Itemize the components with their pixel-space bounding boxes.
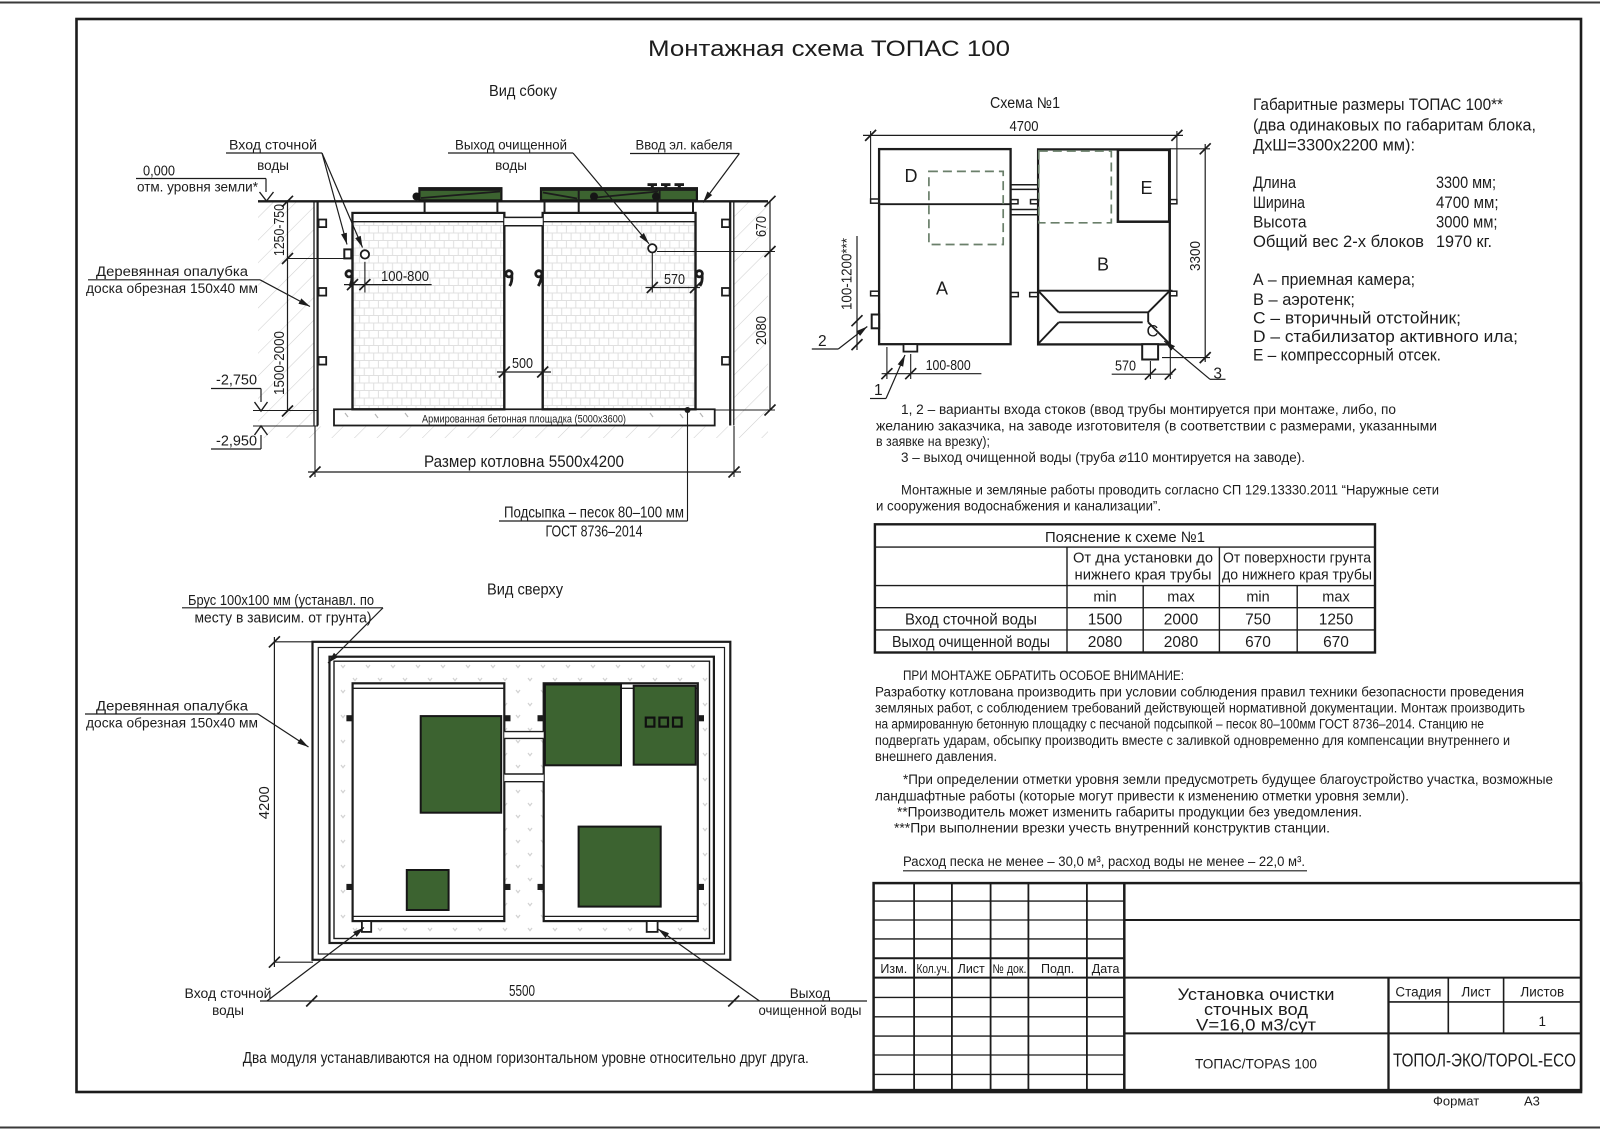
svg-text:внешнего давления.: внешнего давления. (875, 749, 997, 765)
svg-text:Лист: Лист (1461, 985, 1490, 1000)
svg-text:100-800: 100-800 (926, 357, 971, 374)
svg-text:и сооружения водоснабжения и к: и сооружения водоснабжения и канализации… (876, 498, 1161, 514)
svg-text:В – аэротенк;: В – аэротенк; (1253, 291, 1355, 309)
svg-text:ПРИ МОНТАЖЕ ОБРАТИТЬ ОСОБОЕ ВН: ПРИ МОНТАЖЕ ОБРАТИТЬ ОСОБОЕ ВНИМАНИЕ: (903, 668, 1184, 684)
svg-text:2: 2 (818, 333, 827, 350)
svg-text:D: D (905, 166, 918, 186)
svg-text:3 – выход очищенной воды (труб: 3 – выход очищенной воды (труба ⌀110 мон… (901, 450, 1305, 466)
svg-text:до нижнего края трубы: до нижнего края трубы (1222, 568, 1372, 584)
svg-text:500: 500 (512, 355, 533, 372)
svg-text:Стадия: Стадия (1395, 985, 1441, 1000)
svg-text:Вид сбоку: Вид сбоку (489, 83, 557, 100)
svg-text:Армированная бетонная площадка: Армированная бетонная площадка (5000х360… (422, 414, 626, 426)
svg-text:От поверхности грунта: От поверхности грунта (1223, 551, 1372, 567)
svg-text:670: 670 (754, 216, 770, 237)
svg-text:А3: А3 (1524, 1094, 1540, 1109)
svg-text:*При определении отметки уровн: *При определении отметки уровня земли пр… (903, 772, 1553, 788)
svg-text:ДхШ=3300х2200 мм):: ДхШ=3300х2200 мм): (1253, 137, 1415, 155)
svg-text:Разработку котлована производи: Разработку котлована производить при усл… (875, 685, 1524, 701)
svg-text:min: min (1246, 590, 1269, 606)
svg-text:Ширина: Ширина (1253, 194, 1306, 212)
svg-text:Кол.уч.: Кол.уч. (917, 962, 950, 976)
svg-text:5500: 5500 (509, 983, 535, 1000)
svg-text:доска обрезная 150х40 мм: доска обрезная 150х40 мм (86, 716, 258, 731)
svg-text:A: A (936, 279, 948, 299)
svg-text:Вход сточной: Вход сточной (229, 138, 317, 153)
svg-text:Высота: Высота (1253, 214, 1307, 232)
svg-text:Лист: Лист (958, 962, 985, 976)
svg-text:***При выполнении врезки учест: ***При выполнении врезки учесть внутренн… (894, 820, 1330, 836)
svg-text:-2,950: -2,950 (216, 434, 257, 450)
svg-text:ТОПОЛ-ЭКО/TOPOL-ECO: ТОПОЛ-ЭКО/TOPOL-ECO (1393, 1050, 1576, 1071)
svg-text:1500: 1500 (1088, 612, 1123, 629)
svg-text:1970 кг.: 1970 кг. (1436, 233, 1492, 251)
svg-text:-2,750: -2,750 (216, 373, 257, 389)
svg-text:№ док.: № док. (993, 962, 1027, 976)
svg-text:V=16,0 м3/сут: V=16,0 м3/сут (1196, 1017, 1316, 1035)
svg-text:4200: 4200 (257, 786, 273, 819)
svg-text:570: 570 (664, 271, 685, 288)
svg-text:Деревянная опалубка: Деревянная опалубка (96, 699, 249, 714)
svg-text:2080: 2080 (1164, 634, 1199, 651)
svg-text:Формат: Формат (1433, 1094, 1479, 1109)
svg-text:очищенной воды: очищенной воды (759, 1003, 862, 1018)
svg-text:3300 мм;: 3300 мм; (1436, 174, 1496, 192)
svg-text:4700 мм;: 4700 мм; (1436, 194, 1499, 212)
svg-text:1: 1 (874, 382, 883, 399)
svg-text:Общий вес 2-х блоков: Общий вес 2-х блоков (1253, 233, 1424, 251)
svg-text:Подсыпка – песок 80–100 мм: Подсыпка – песок 80–100 мм (504, 505, 684, 522)
svg-text:D – стабилизатор активного ила: D – стабилизатор активного ила; (1253, 328, 1518, 346)
svg-text:100-800: 100-800 (381, 268, 429, 285)
svg-text:2080: 2080 (754, 316, 770, 345)
svg-text:Выход очищенной: Выход очищенной (455, 138, 567, 153)
svg-text:отм. уровня земли*: отм. уровня земли* (137, 180, 259, 195)
svg-text:1250: 1250 (1319, 612, 1354, 629)
svg-text:Ввод эл. кабеля: Ввод эл. кабеля (636, 138, 733, 153)
svg-text:Вход сточной: Вход сточной (185, 986, 272, 1001)
svg-text:ландшафтные работы (которые мо: ландшафтные работы (которые могут привес… (875, 789, 1409, 805)
svg-text:1: 1 (1539, 1014, 1547, 1029)
svg-text:Расход песка не менее – 30,0 м: Расход песка не менее – 30,0 м³, расход … (903, 854, 1305, 870)
svg-text:Выход очищенной воды: Выход очищенной воды (892, 634, 1050, 651)
svg-text:Изм.: Изм. (880, 962, 907, 976)
svg-text:ГОСТ 8736–2014: ГОСТ 8736–2014 (546, 524, 643, 541)
svg-text:Схема №1: Схема №1 (990, 95, 1060, 112)
svg-text:Листов: Листов (1520, 985, 1564, 1000)
svg-text:месту в зависим. от грунта): месту в зависим. от грунта) (195, 610, 372, 626)
svg-text:(два одинаковых по габаритам б: (два одинаковых по габаритам блока, (1253, 117, 1536, 135)
svg-text:570: 570 (1115, 358, 1136, 375)
svg-text:Брус 100х100 мм (устанавл. по: Брус 100х100 мм (устанавл. по (188, 593, 374, 609)
svg-text:Габаритные размеры ТОПАС 100**: Габаритные размеры ТОПАС 100** (1253, 96, 1504, 114)
svg-text:1, 2 – варианты входа стоков: 1, 2 – варианты входа стоков (ввод трубы… (901, 402, 1396, 418)
svg-text:min: min (1093, 590, 1116, 606)
svg-text:воды: воды (257, 158, 289, 173)
svg-text:на армированную бетонную площа: на армированную бетонную площадку с песч… (875, 716, 1484, 732)
svg-text:Длина: Длина (1253, 174, 1297, 192)
svg-text:в заявке на врезку);: в заявке на врезку); (876, 434, 990, 450)
svg-text:Е – компрессорный отсек.: Е – компрессорный отсек. (1253, 347, 1441, 365)
svg-text:Размер котловна 5500х4200: Размер котловна 5500х4200 (424, 453, 624, 471)
svg-text:2080: 2080 (1088, 634, 1123, 651)
svg-text:Пояснение к схеме №1: Пояснение к схеме №1 (1045, 529, 1205, 546)
svg-text:доска обрезная 150х40 мм: доска обрезная 150х40 мм (86, 281, 258, 296)
svg-text:А – приемная камера;: А – приемная камера; (1253, 271, 1415, 289)
svg-text:3000 мм;: 3000 мм; (1436, 214, 1498, 232)
svg-text:670: 670 (1323, 634, 1349, 651)
svg-text:Вход сточной воды: Вход сточной воды (905, 612, 1037, 629)
svg-text:3300: 3300 (1188, 241, 1204, 271)
svg-text:4700: 4700 (1010, 118, 1039, 135)
svg-text:max: max (1167, 590, 1195, 606)
svg-text:max: max (1322, 590, 1350, 606)
svg-text:воды: воды (212, 1003, 244, 1018)
svg-text:Монтажные и земляные работы пр: Монтажные и земляные работы проводить со… (901, 482, 1439, 498)
svg-text:Два модуля устанавливаются на: Два модуля устанавливаются на одном гори… (243, 1050, 809, 1067)
svg-text:Вид сверху: Вид сверху (487, 582, 563, 599)
svg-text:0,000: 0,000 (143, 164, 175, 180)
svg-text:С – вторичный отстойник;: С – вторичный отстойник; (1253, 310, 1461, 328)
svg-text:земляных работ, с соблюдением: земляных работ, с соблюдением требований… (875, 701, 1525, 717)
svg-text:Монтажная схема ТОПАС 100: Монтажная схема ТОПАС 100 (648, 36, 1010, 61)
svg-text:Деревянная опалубка: Деревянная опалубка (96, 264, 249, 279)
svg-text:воды: воды (495, 158, 527, 173)
svg-text:ТОПАС/TOPAS 100: ТОПАС/TOPAS 100 (1195, 1057, 1317, 1072)
svg-text:2000: 2000 (1164, 612, 1199, 629)
svg-text:100-1200***: 100-1200*** (840, 238, 856, 310)
svg-text:Дата: Дата (1092, 962, 1120, 976)
svg-text:**Производитель может изменить: **Производитель может изменить габариты … (897, 805, 1362, 821)
svg-text:750: 750 (1245, 612, 1271, 629)
svg-text:подвергать ударам, обсыпку про: подвергать ударам, обсыпку производить в… (875, 733, 1510, 749)
svg-text:желанию заказчика, на заводе и: желанию заказчика, на заводе изготовител… (876, 419, 1437, 435)
svg-text:Подп.: Подп. (1041, 962, 1074, 976)
svg-text:От дна установки до: От дна установки до (1073, 551, 1213, 567)
svg-text:B: B (1097, 255, 1109, 275)
svg-text:E: E (1141, 178, 1153, 198)
svg-text:1250-750: 1250-750 (272, 204, 288, 256)
svg-text:670: 670 (1245, 634, 1271, 651)
svg-text:Выход: Выход (790, 986, 831, 1001)
svg-text:C: C (1147, 323, 1159, 341)
svg-text:3: 3 (1213, 366, 1222, 383)
svg-text:1500-2000: 1500-2000 (272, 331, 288, 395)
svg-text:нижнего края трубы: нижнего края трубы (1075, 568, 1212, 584)
